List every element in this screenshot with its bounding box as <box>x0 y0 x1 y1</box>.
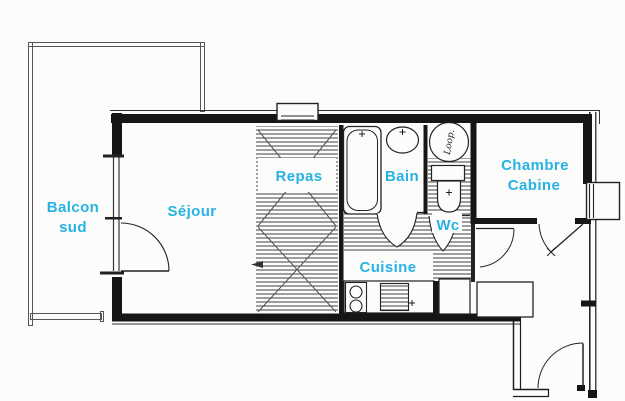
hall-door <box>476 229 514 268</box>
dining-floor-hatch <box>256 126 338 313</box>
sink-counter <box>439 279 470 314</box>
oven <box>381 284 409 311</box>
door-tip-mark <box>547 248 555 256</box>
washbasin <box>387 127 419 153</box>
floor-plan-page: Loop. Balcon sud Séjo <box>0 0 625 401</box>
bath-label: Bain <box>385 168 419 185</box>
wc-label: Wc <box>436 217 459 234</box>
counter-divider-wall <box>433 281 439 314</box>
bedroom-label-line1: Chambre <box>501 157 569 174</box>
burner <box>350 300 362 312</box>
hall-cabinet <box>477 282 533 317</box>
floor-plan-drawing: Loop. Balcon sud Séjo <box>0 0 625 401</box>
bedroom-door <box>539 224 583 256</box>
bedroom-label-line2: Cabine <box>508 177 560 194</box>
burner <box>350 286 362 298</box>
balcony-door <box>121 223 169 271</box>
bedroom-window-box <box>587 183 620 220</box>
balcony-window <box>100 155 124 275</box>
entrance-door <box>538 343 583 388</box>
kitchen-counter <box>344 281 434 313</box>
kitchen-side-hatch <box>433 253 472 280</box>
balcony-label-line1: Balcon <box>47 199 99 216</box>
balcony-label-line2: sud <box>59 219 87 236</box>
washing-machine: Loop. <box>430 123 469 162</box>
bathtub <box>344 127 382 215</box>
top-window <box>277 104 318 121</box>
dining-label: Repas <box>275 168 322 185</box>
kitchen-label: Cuisine <box>360 259 417 276</box>
living-room-label: Séjour <box>167 203 216 220</box>
